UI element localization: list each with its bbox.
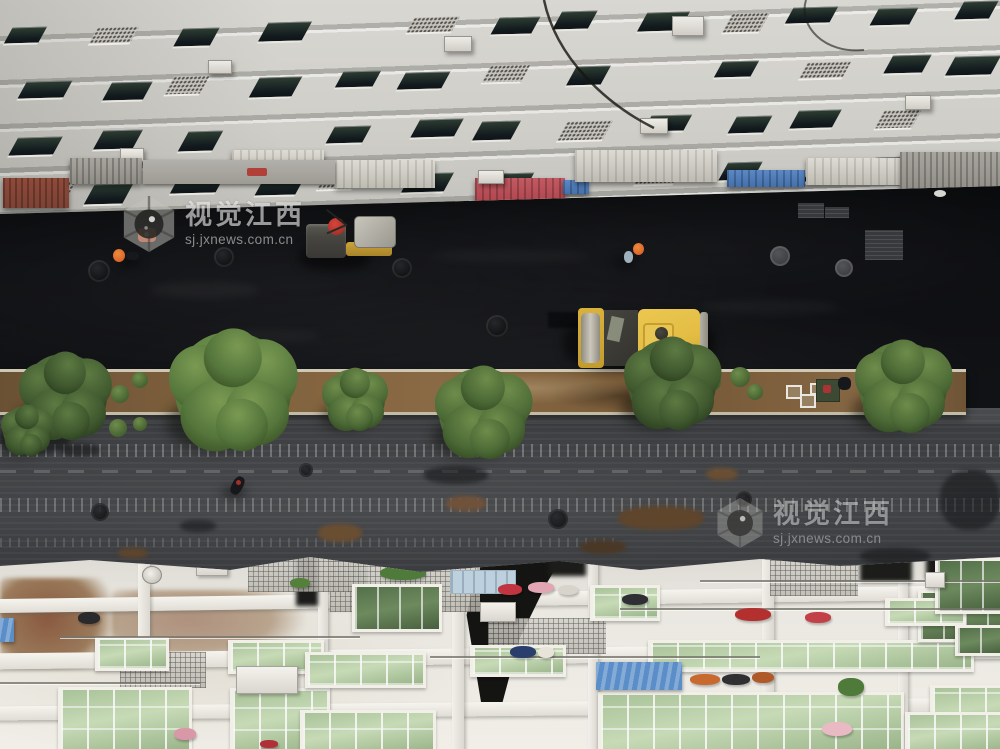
laundry-item — [752, 672, 774, 683]
laundry-item — [690, 674, 720, 685]
laundry-item — [78, 612, 100, 624]
rooftop-skylight — [300, 710, 436, 749]
storefront-awning — [806, 158, 906, 185]
rooftop-skylight — [305, 652, 426, 688]
terrace-railing — [60, 636, 360, 638]
storefront-awning — [727, 170, 805, 187]
rooftop-shed — [925, 572, 945, 588]
laundry-item — [722, 674, 750, 685]
laundry-item — [838, 678, 864, 696]
rooftop-skylight — [905, 712, 1000, 749]
storefront-awning — [335, 160, 435, 188]
blue-tarp — [596, 662, 682, 690]
building-facades-top — [0, 0, 1000, 216]
blue-tarp — [0, 618, 14, 642]
median-planter — [0, 369, 966, 415]
rooftop-skylight — [95, 637, 169, 671]
rooftop-skylight — [352, 584, 442, 632]
laundry-item — [174, 728, 196, 740]
satellite-dish — [142, 566, 162, 584]
terrace-railing — [700, 580, 1000, 582]
rooftop-skylight — [955, 625, 1000, 656]
rooftop-shed — [480, 602, 516, 622]
rooftop-shed — [236, 666, 298, 694]
laundry-item — [290, 578, 310, 588]
laundry-item — [622, 594, 648, 605]
aerial-photo-road-paving: 视觉江西 sj.jxnews.com.cn 视觉江西 sj.jxnews.com… — [0, 0, 1000, 749]
laundry-item — [805, 612, 831, 623]
laundry-item — [538, 647, 554, 658]
roadside-sidewalk — [143, 160, 335, 184]
storefront-awning — [575, 150, 717, 182]
laundry-item — [498, 584, 522, 595]
laundry-item — [558, 585, 578, 595]
storefront-awning — [3, 178, 69, 208]
rooftop-terraces — [0, 552, 1000, 749]
milled-road — [0, 408, 1000, 578]
awning-ac-unit — [478, 170, 504, 184]
storefront-awning — [70, 158, 142, 184]
laundry-item — [735, 608, 771, 621]
laundry-item — [528, 582, 554, 593]
rooftop-skylight — [58, 687, 192, 749]
rooftop-skylight — [598, 692, 904, 749]
laundry-item — [822, 722, 852, 736]
laundry-item — [510, 646, 536, 658]
terrace-railing — [430, 656, 760, 658]
terrace-railing — [0, 682, 200, 684]
storefront-awning — [563, 180, 589, 194]
laundry-item — [260, 740, 278, 748]
sidewalk-object — [247, 168, 267, 176]
terrace-railing — [620, 608, 1000, 610]
